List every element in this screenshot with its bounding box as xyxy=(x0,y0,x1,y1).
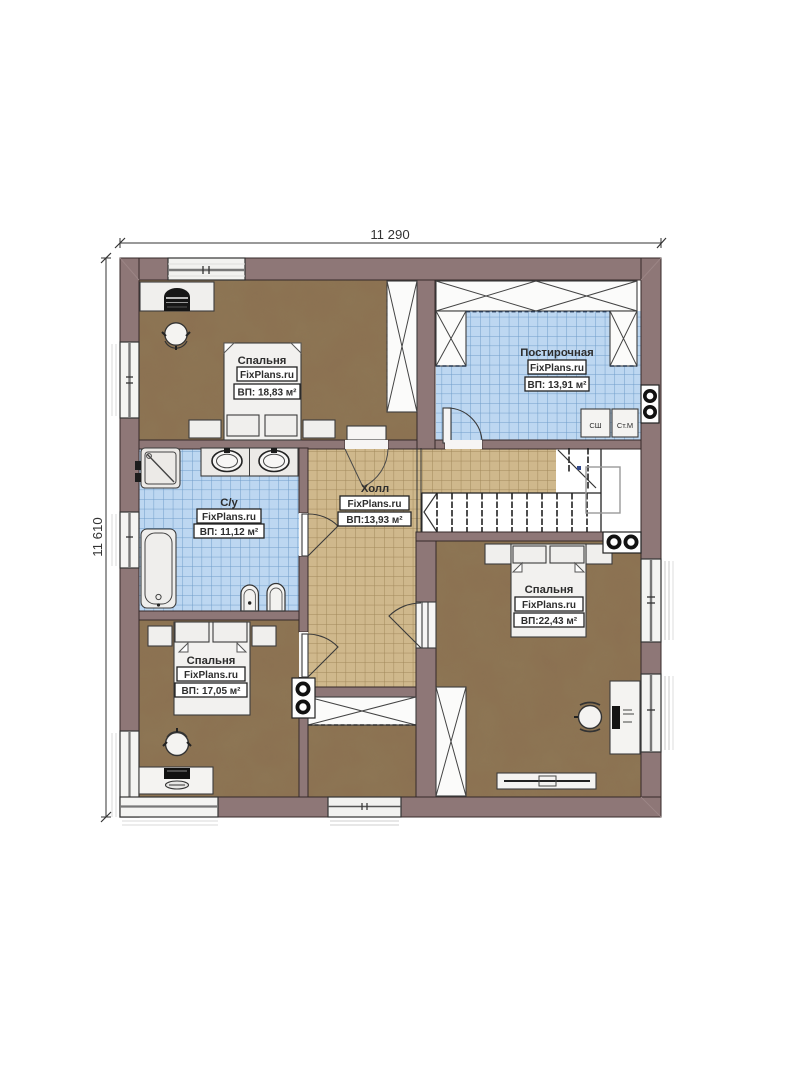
svg-text:FixPlans.ru: FixPlans.ru xyxy=(348,499,402,510)
svg-text:Холл: Холл xyxy=(361,483,389,495)
svg-text:FixPlans.ru: FixPlans.ru xyxy=(530,363,584,374)
svg-text:FixPlans.ru: FixPlans.ru xyxy=(522,600,576,611)
svg-text:ВП: 13,91 м²: ВП: 13,91 м² xyxy=(527,380,587,391)
svg-text:Спальня: Спальня xyxy=(238,355,287,367)
svg-text:FixPlans.ru: FixPlans.ru xyxy=(240,370,294,381)
svg-text:Постирочная: Постирочная xyxy=(520,347,593,359)
svg-text:Спальня: Спальня xyxy=(187,655,236,667)
svg-text:ВП: 17,05 м²: ВП: 17,05 м² xyxy=(181,686,241,697)
svg-text:Ст.М: Ст.М xyxy=(617,421,633,430)
svg-text:Спальня: Спальня xyxy=(525,584,574,596)
svg-text:11 290: 11 290 xyxy=(370,227,409,242)
svg-text:ВП:13,93 м²: ВП:13,93 м² xyxy=(346,515,403,526)
svg-text:СШ: СШ xyxy=(589,421,601,430)
svg-text:ВП:22,43 м²: ВП:22,43 м² xyxy=(521,616,578,627)
svg-text:ВП: 11,12 м²: ВП: 11,12 м² xyxy=(200,527,259,538)
svg-text:С/у: С/у xyxy=(220,497,238,509)
svg-text:FixPlans.ru: FixPlans.ru xyxy=(184,670,238,681)
svg-text:ВП: 18,83 м²: ВП: 18,83 м² xyxy=(237,388,297,399)
svg-text:11 610: 11 610 xyxy=(90,517,105,556)
svg-text:FixPlans.ru: FixPlans.ru xyxy=(202,512,256,523)
